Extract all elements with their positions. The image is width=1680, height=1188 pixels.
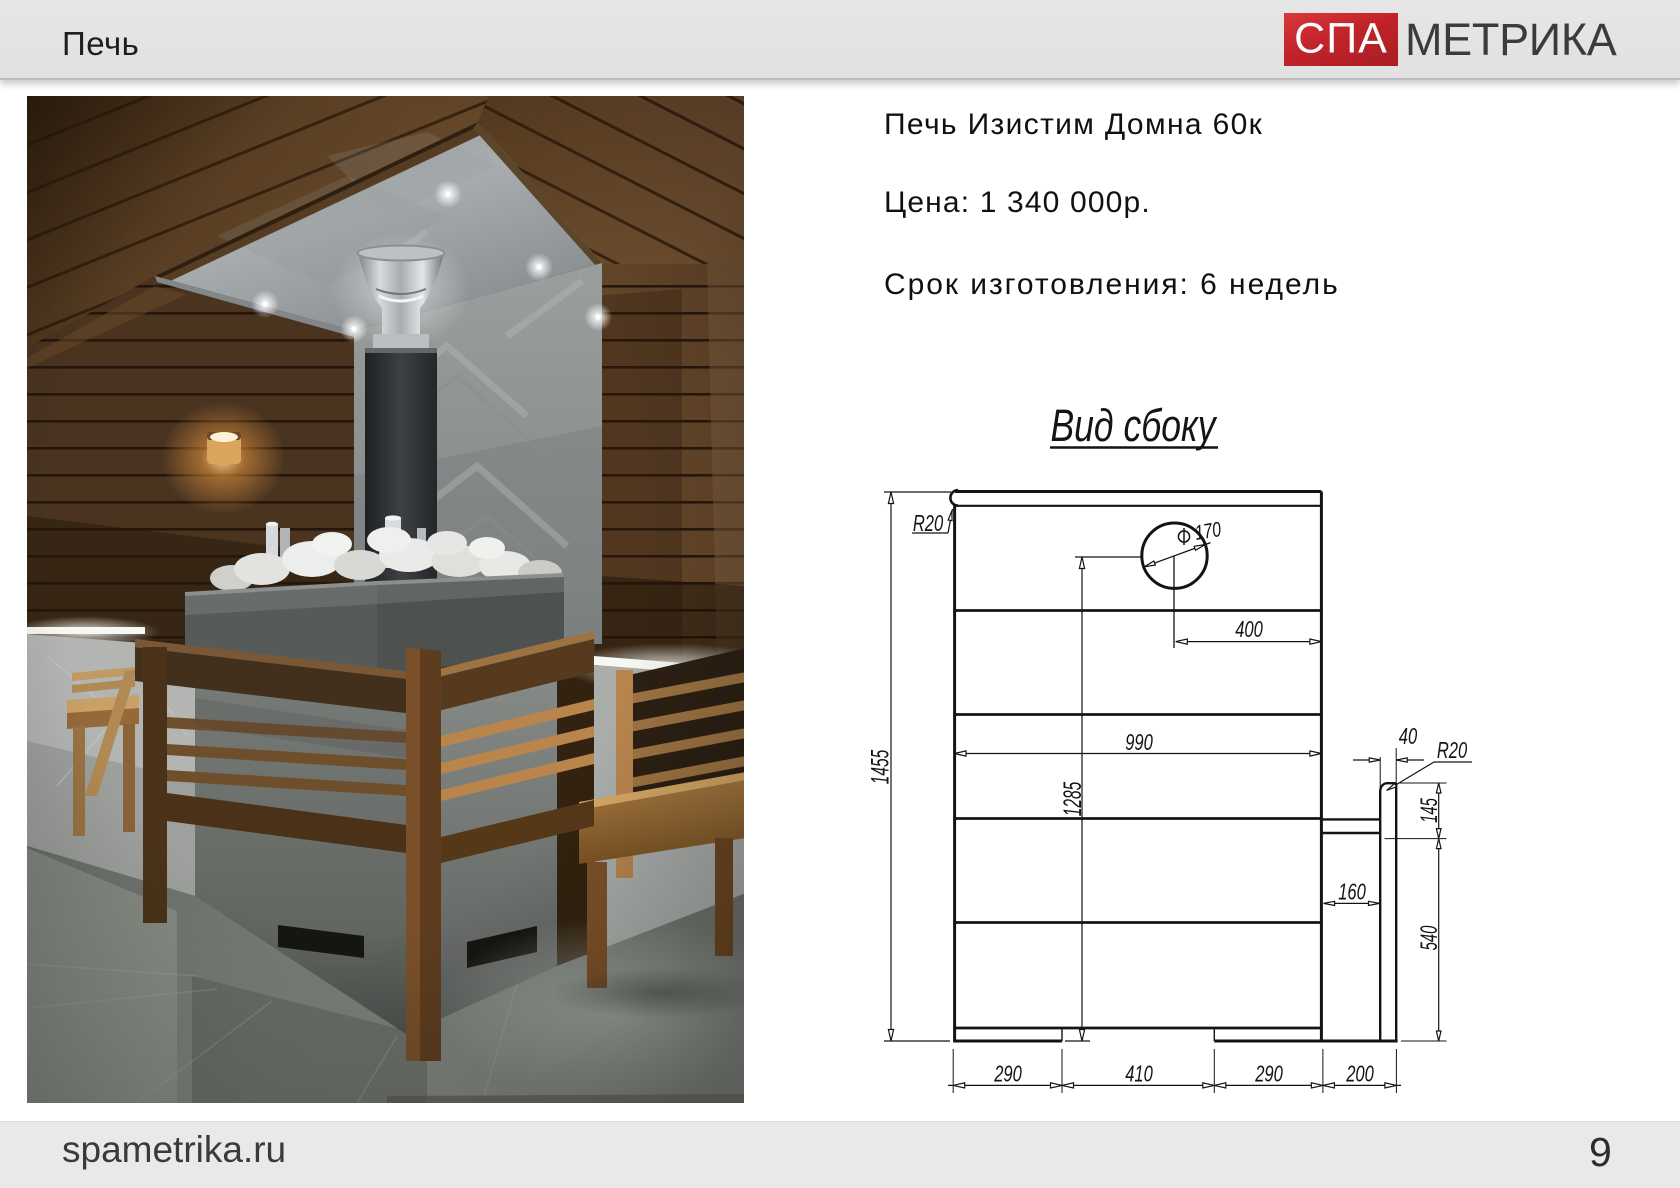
svg-text:540: 540 bbox=[1417, 926, 1443, 951]
svg-text:145: 145 bbox=[1417, 797, 1443, 822]
svg-text:160: 160 bbox=[1338, 880, 1366, 905]
svg-text:400: 400 bbox=[1235, 617, 1263, 642]
svg-text:1455: 1455 bbox=[867, 749, 895, 784]
svg-text:290: 290 bbox=[993, 1062, 1021, 1087]
svg-text:R20: R20 bbox=[913, 511, 943, 536]
svg-text:40: 40 bbox=[1399, 724, 1417, 749]
svg-text:990: 990 bbox=[1125, 730, 1153, 755]
svg-text:200: 200 bbox=[1345, 1062, 1373, 1087]
svg-text:R20: R20 bbox=[1437, 738, 1467, 763]
svg-text:1285: 1285 bbox=[1059, 781, 1087, 816]
svg-text:170: 170 bbox=[1193, 517, 1223, 545]
svg-text:290: 290 bbox=[1254, 1062, 1282, 1087]
svg-text:Вид сбоку: Вид сбоку bbox=[1050, 400, 1217, 451]
svg-text:410: 410 bbox=[1125, 1062, 1153, 1087]
